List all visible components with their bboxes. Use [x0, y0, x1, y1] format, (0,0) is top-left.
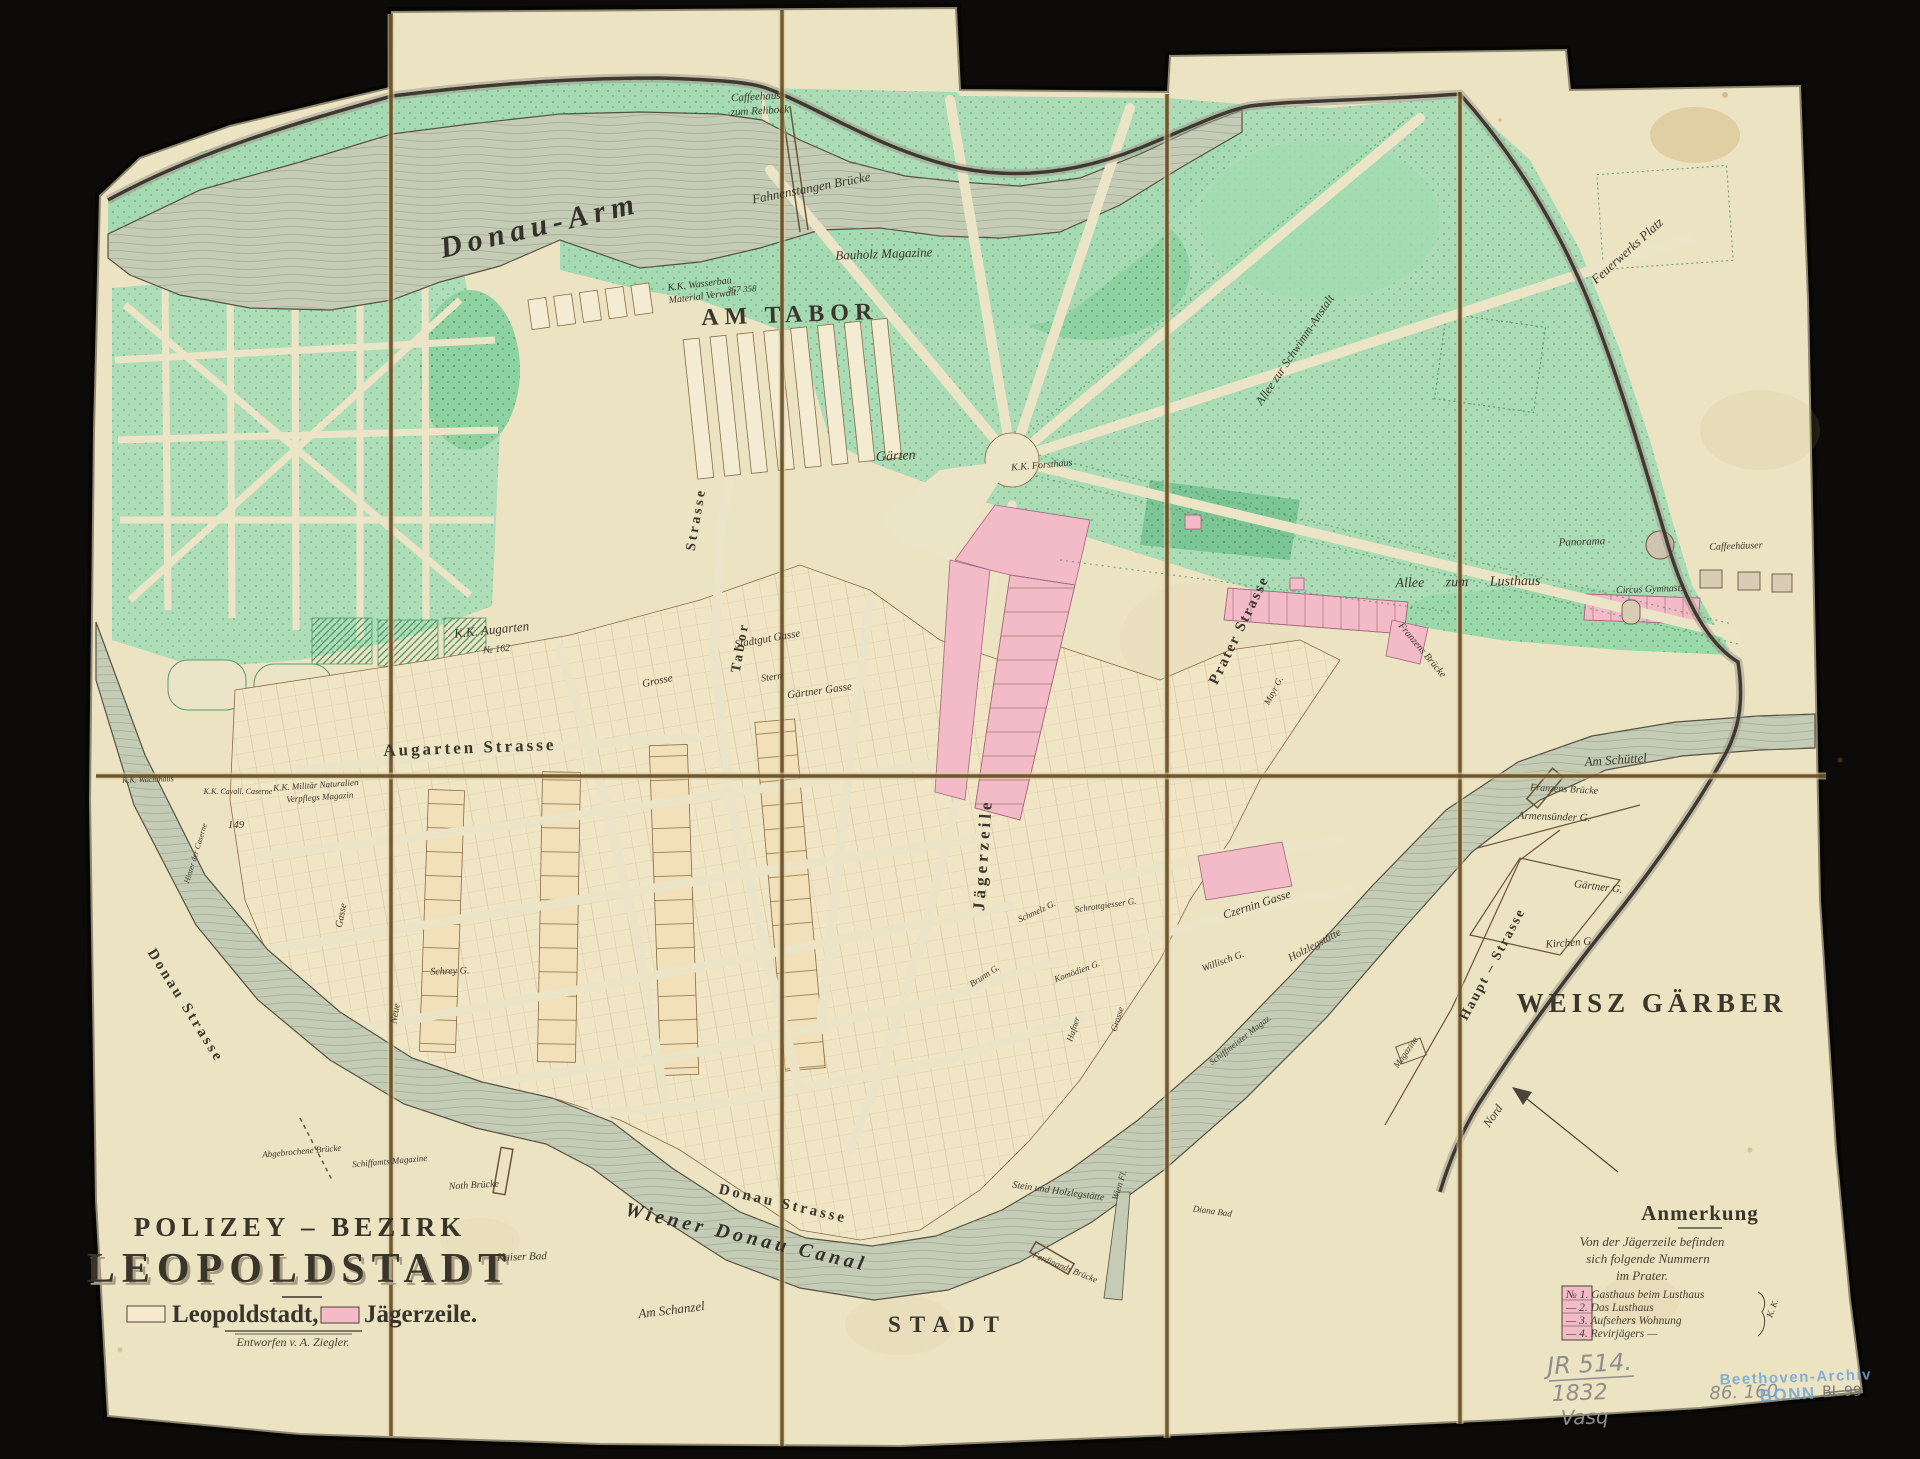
note-item-2: — 2. Das Lusthaus: [1565, 1302, 1654, 1314]
augarten-park: [112, 258, 520, 714]
map-label: 149: [228, 819, 245, 831]
map-label: 357 358: [726, 283, 757, 295]
map-label: STADT: [888, 1312, 1008, 1337]
map-label: K.K. Cavall. Caserne: [203, 787, 273, 796]
cartographer-credit: Entworfen v. A. Ziegler.: [236, 1335, 350, 1349]
map-label: Allee zum Lusthaus: [1394, 574, 1541, 592]
map-label: Panorama: [1557, 535, 1605, 549]
archive-stamp-line2: BONN: [1759, 1384, 1816, 1406]
note-intro-line3: im Prater.: [1616, 1268, 1668, 1283]
note-heading: Anmerkung: [1641, 1201, 1759, 1225]
map-label: Armensünder G.: [1517, 810, 1591, 825]
legend-label-jaegerzeile: Jägerzeile.: [364, 1301, 477, 1328]
map-label: K.K. Wachthaus: [121, 774, 174, 785]
pencil-word: Vasq: [1560, 1404, 1609, 1430]
map-label: Kaiser Bad: [496, 1250, 548, 1264]
map-label: Gärten: [876, 448, 916, 465]
pencil-shelfmark: JR 514.: [1542, 1348, 1632, 1381]
note-intro-line2: sich folgende Nummern: [1586, 1251, 1709, 1266]
note-item-1: № 1. Gasthaus beim Lusthaus: [1565, 1289, 1705, 1301]
note-item-4: — 4. Revirjägers —: [1565, 1328, 1658, 1340]
map-canvas: POLIZEY – BEZIRK LEOPOLDSTADT LEOPOLDSTA…: [0, 0, 1920, 1459]
map-label: Schrey G.: [430, 965, 469, 977]
legend-label-leopoldstadt: Leopoldstadt,: [172, 1301, 319, 1328]
legend-swatch-leopoldstadt: [127, 1306, 165, 1322]
scanned-map-screenshot: POLIZEY – BEZIRK LEOPOLDSTADT LEOPOLDSTA…: [0, 0, 1920, 1459]
map-label: WEISZ GÄRBER: [1517, 988, 1788, 1018]
legend-swatch-jaegerzeile: [321, 1307, 359, 1323]
note-item-3: — 3. Aufsehers Wohnung: [1565, 1315, 1682, 1327]
note-intro-line1: Von der Jägerzeile befinden: [1580, 1234, 1725, 1249]
map-title-line2: LEOPOLDSTADT: [87, 1246, 513, 1292]
pencil-year: 1832: [1551, 1380, 1608, 1407]
map-label: Caffeehäuser: [1709, 540, 1763, 553]
map-title-line1: POLIZEY – BEZIRK: [134, 1212, 467, 1242]
